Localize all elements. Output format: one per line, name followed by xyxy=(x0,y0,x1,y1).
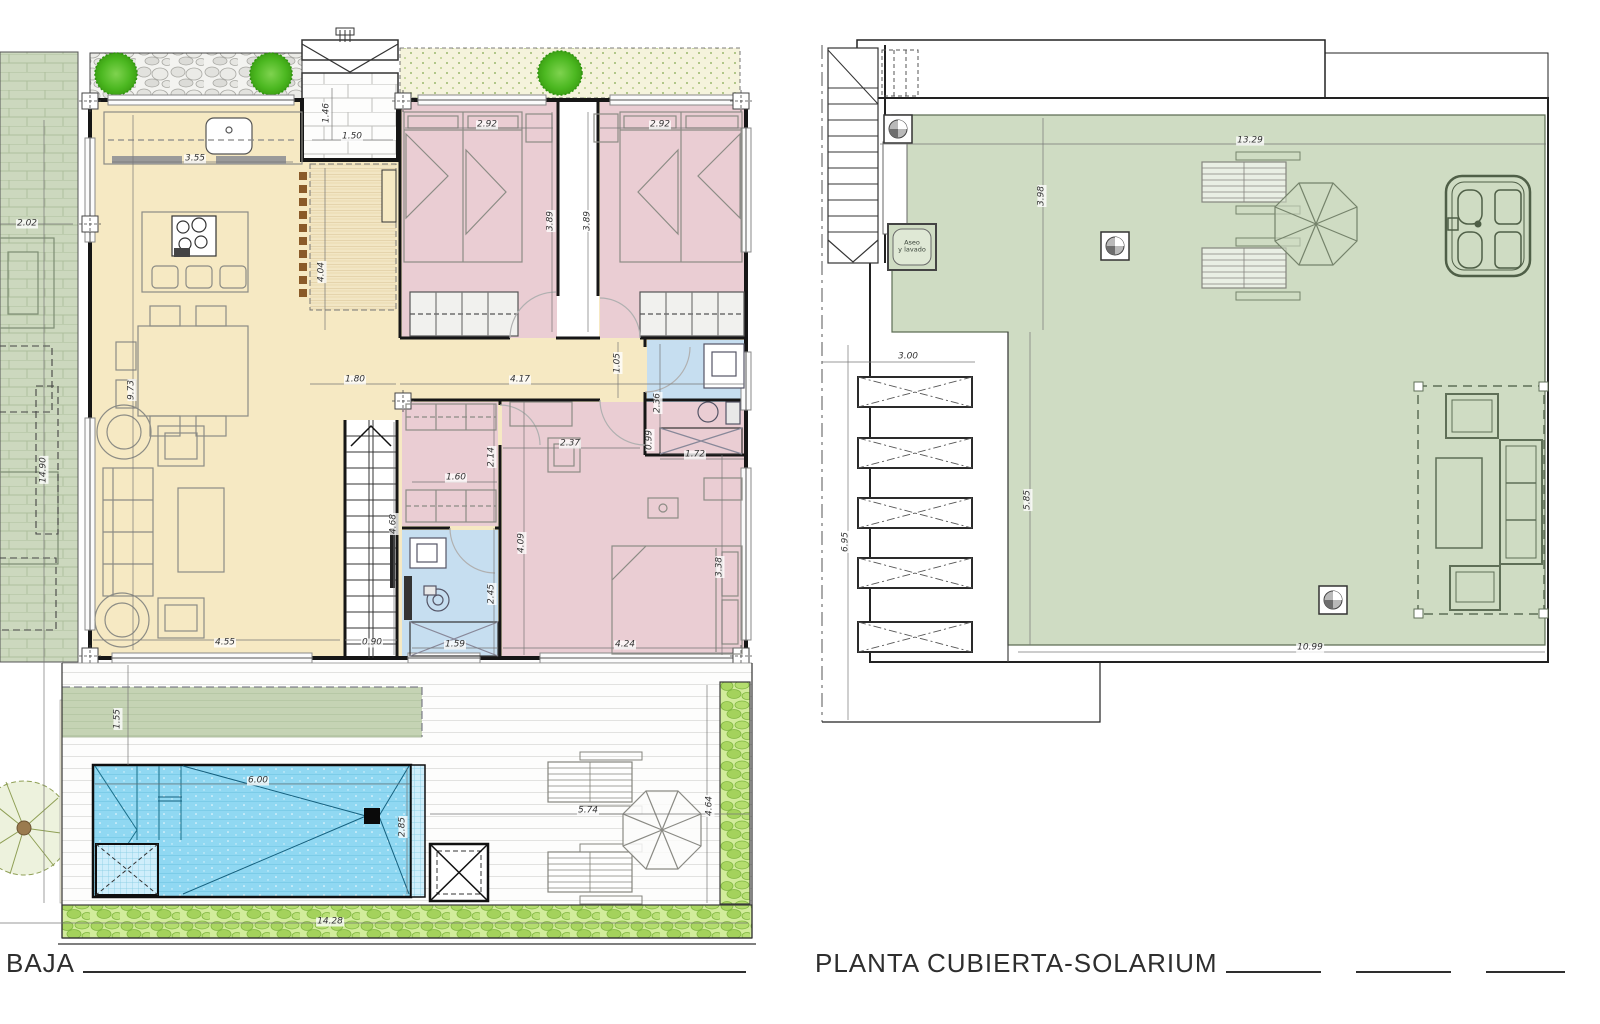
plans-linework xyxy=(0,0,1600,1024)
house-shell xyxy=(79,90,752,667)
front-pebble-bed xyxy=(90,53,302,100)
drain-icon xyxy=(1101,232,1129,260)
tree-icon xyxy=(250,53,292,95)
pool-drain xyxy=(364,808,380,824)
tree-icon xyxy=(538,51,582,95)
drain-icon xyxy=(884,115,912,143)
right-plan-title: PLANTA CUBIERTA-SOLARIUM xyxy=(815,950,1565,976)
solarium-parasol xyxy=(1275,183,1357,265)
kids-pool xyxy=(96,844,158,895)
left-plan-title-rule xyxy=(83,971,746,973)
towel-rail xyxy=(404,576,412,620)
gravel-border-right xyxy=(720,682,750,904)
kitchen-sink xyxy=(206,118,252,154)
right-plan-title-rule xyxy=(1226,971,1565,973)
roof-solarium-plan xyxy=(822,40,1548,722)
left-plan-title: BAJA xyxy=(6,950,746,976)
stair-well xyxy=(346,420,396,656)
utility-box xyxy=(888,224,936,270)
roof-band xyxy=(857,40,1325,98)
vanity xyxy=(410,538,446,568)
stair-landing xyxy=(883,142,907,234)
drain-icon xyxy=(1319,586,1347,614)
vanity xyxy=(704,344,744,388)
side-terrace xyxy=(0,52,78,662)
deck-table xyxy=(430,844,488,901)
parasol xyxy=(623,791,701,869)
rear-stipple-bed xyxy=(400,48,740,98)
gravel-border-bottom xyxy=(62,905,752,938)
swimming-pool xyxy=(93,765,425,897)
wardrobe-room xyxy=(402,402,498,526)
lawn-band xyxy=(62,687,422,737)
left-plan-title-text: BAJA xyxy=(6,950,75,976)
architectural-drawing-sheet: 2.0214.903.551.461.504.042.922.923.893.8… xyxy=(0,0,1600,1024)
ground-floor-plan xyxy=(0,28,756,944)
lower-roof-outline xyxy=(822,662,1100,722)
master-bedroom xyxy=(502,402,744,656)
tree-icon xyxy=(95,53,137,95)
right-plan-title-text: PLANTA CUBIERTA-SOLARIUM xyxy=(815,950,1218,976)
